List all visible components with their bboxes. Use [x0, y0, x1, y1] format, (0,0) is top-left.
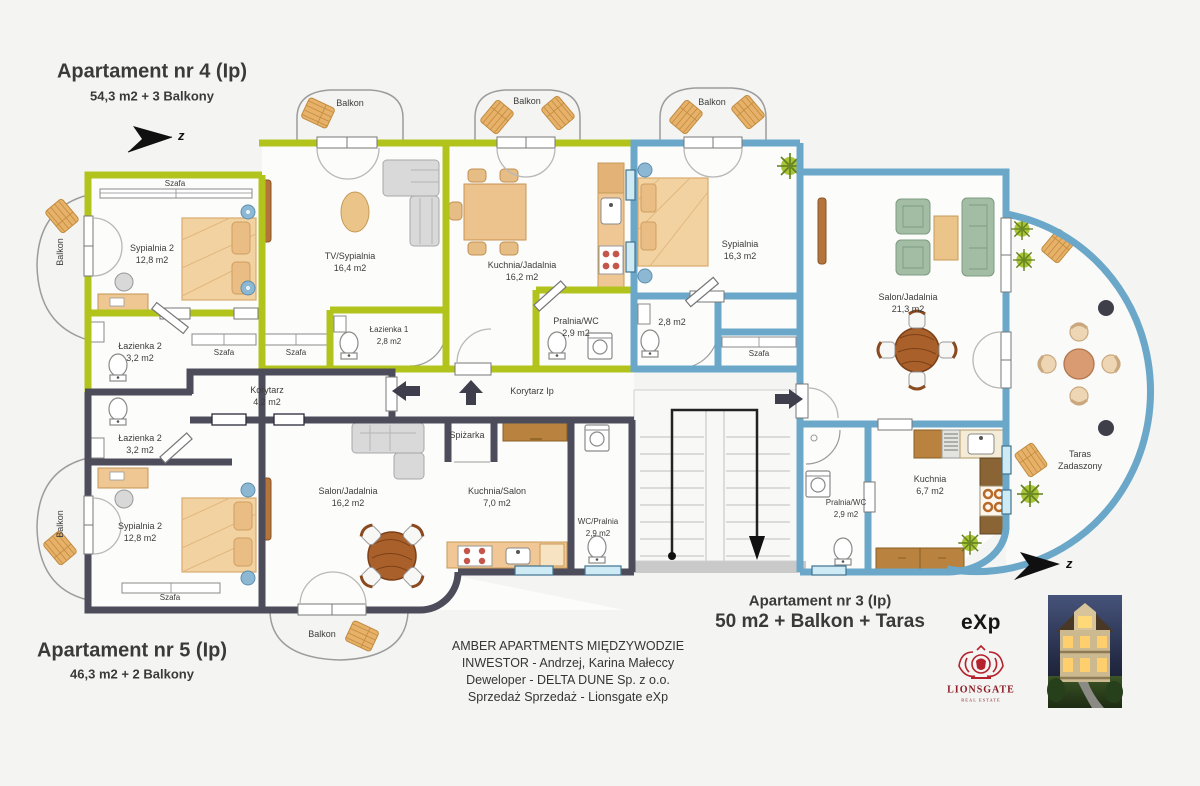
room-label-apt4-sypialnia2: Sypialnia 212,8 m2 — [130, 242, 174, 266]
room-label-apt3-pralnia-wc: Pralnia/WC2,9 m2 — [826, 497, 866, 521]
room-label-apt5-korytarz: Korytarz4,2 m2 — [250, 384, 284, 408]
room-label-apt3-sypialnia: Sypialnia16,3 m2 — [722, 238, 759, 262]
apartment4-size: 54,3 m2 + 3 Balkony — [90, 89, 214, 104]
room-label-apt4-pralnia-wc: Pralnia/WC2,9 m2 — [553, 315, 599, 339]
house-photo — [1047, 595, 1123, 708]
apartment5-size: 46,3 m2 + 2 Balkony — [70, 667, 194, 682]
balkon-label-top-2: Balkon — [513, 95, 541, 107]
room-label-apt4-lazienka2: Łazienka 23,2 m2 — [118, 340, 162, 364]
balkon-label-top-1: Balkon — [336, 97, 364, 109]
room-label-apt5-kuchnia-salon: Kuchnia/Salon7,0 m2 — [468, 485, 526, 509]
room-label-apt5-lazienka2: Łazienka 23,2 m2 — [118, 432, 162, 456]
room-label-apt4-tv-sypialnia: TV/Sypialnia16,4 m2 — [325, 250, 376, 274]
szafa-label-1: Szafa — [165, 178, 185, 190]
exp-logo: eXp — [961, 611, 1001, 635]
lionsgate-logo-subtext: REAL ESTATE — [961, 698, 1001, 703]
room-label-apt4-kuchnia-jadalnia: Kuchnia/Jadalnia16,2 m2 — [488, 259, 557, 283]
balkon-label-left-apt4: Balkon — [54, 238, 66, 266]
room-label-apt5-salon-jadalnia: Salon/Jadalnia16,2 m2 — [318, 485, 377, 509]
balkon-label-top-3: Balkon — [698, 96, 726, 108]
room-label-apt5-wc-pralnia: WC/Pralnia2,9 m2 — [578, 516, 618, 540]
project-info-line1: AMBER APARTMENTS MIĘDZYWODZIE — [452, 638, 684, 655]
szafa-label-4: Szafa — [749, 348, 769, 360]
balkon-label-bottom-apt5: Balkon — [308, 628, 336, 640]
lionsgate-crest-icon — [959, 646, 1003, 678]
project-info: AMBER APARTMENTS MIĘDZYWODZIE INWESTOR -… — [452, 638, 684, 706]
room-label-apt3-kuchnia: Kuchnia6,7 m2 — [914, 473, 947, 497]
floorplan-page: Apartament nr 4 (Ip) 54,3 m2 + 3 Balkony… — [0, 0, 1200, 786]
compass-label-2: z — [1066, 556, 1073, 571]
room-label-apt4-lazienka1: Łazienka 12,8 m2 — [370, 324, 409, 348]
project-info-line3: Deweloper - DELTA DUNE Sp. z o.o. — [452, 672, 684, 689]
room-label-apt5-spizarka: Spiżarka — [449, 429, 484, 441]
compass-north-1 — [128, 126, 172, 152]
balkon-label-left-apt5: Balkon — [54, 510, 66, 538]
room-label-apt3-lazienka2: 2,8 m2 — [658, 316, 686, 328]
staircase — [630, 390, 806, 573]
apartment5-title: Apartament nr 5 (Ip) — [37, 640, 227, 663]
apartment3-title: Apartament nr 3 (Ip) — [749, 593, 892, 610]
room-label-korytarz-ip: Korytarz Ip — [510, 385, 554, 397]
szafa-label-3: Szafa — [286, 347, 306, 359]
room-label-apt5-sypialnia2: Sypialnia 212,8 m2 — [118, 520, 162, 544]
szafa-label-2: Szafa — [214, 347, 234, 359]
room-label-taras: TarasZadaszony — [1058, 448, 1102, 472]
lionsgate-logo-text: LIONSGATE — [947, 685, 1015, 696]
project-info-line2: INWESTOR - Andrzej, Karina Małeccy — [452, 655, 684, 672]
compass-label-1: z — [178, 128, 185, 143]
apartment4-title: Apartament nr 4 (Ip) — [57, 61, 247, 84]
apartment3-size: 50 m2 + Balkon + Taras — [715, 611, 925, 633]
room-label-apt3-salon-jadalnia: Salon/Jadalnia21,3 m2 — [878, 291, 937, 315]
szafa-label-5: Szafa — [160, 592, 180, 604]
project-info-line4: Sprzedaż Sprzedaż - Lionsgate eXp — [452, 689, 684, 706]
